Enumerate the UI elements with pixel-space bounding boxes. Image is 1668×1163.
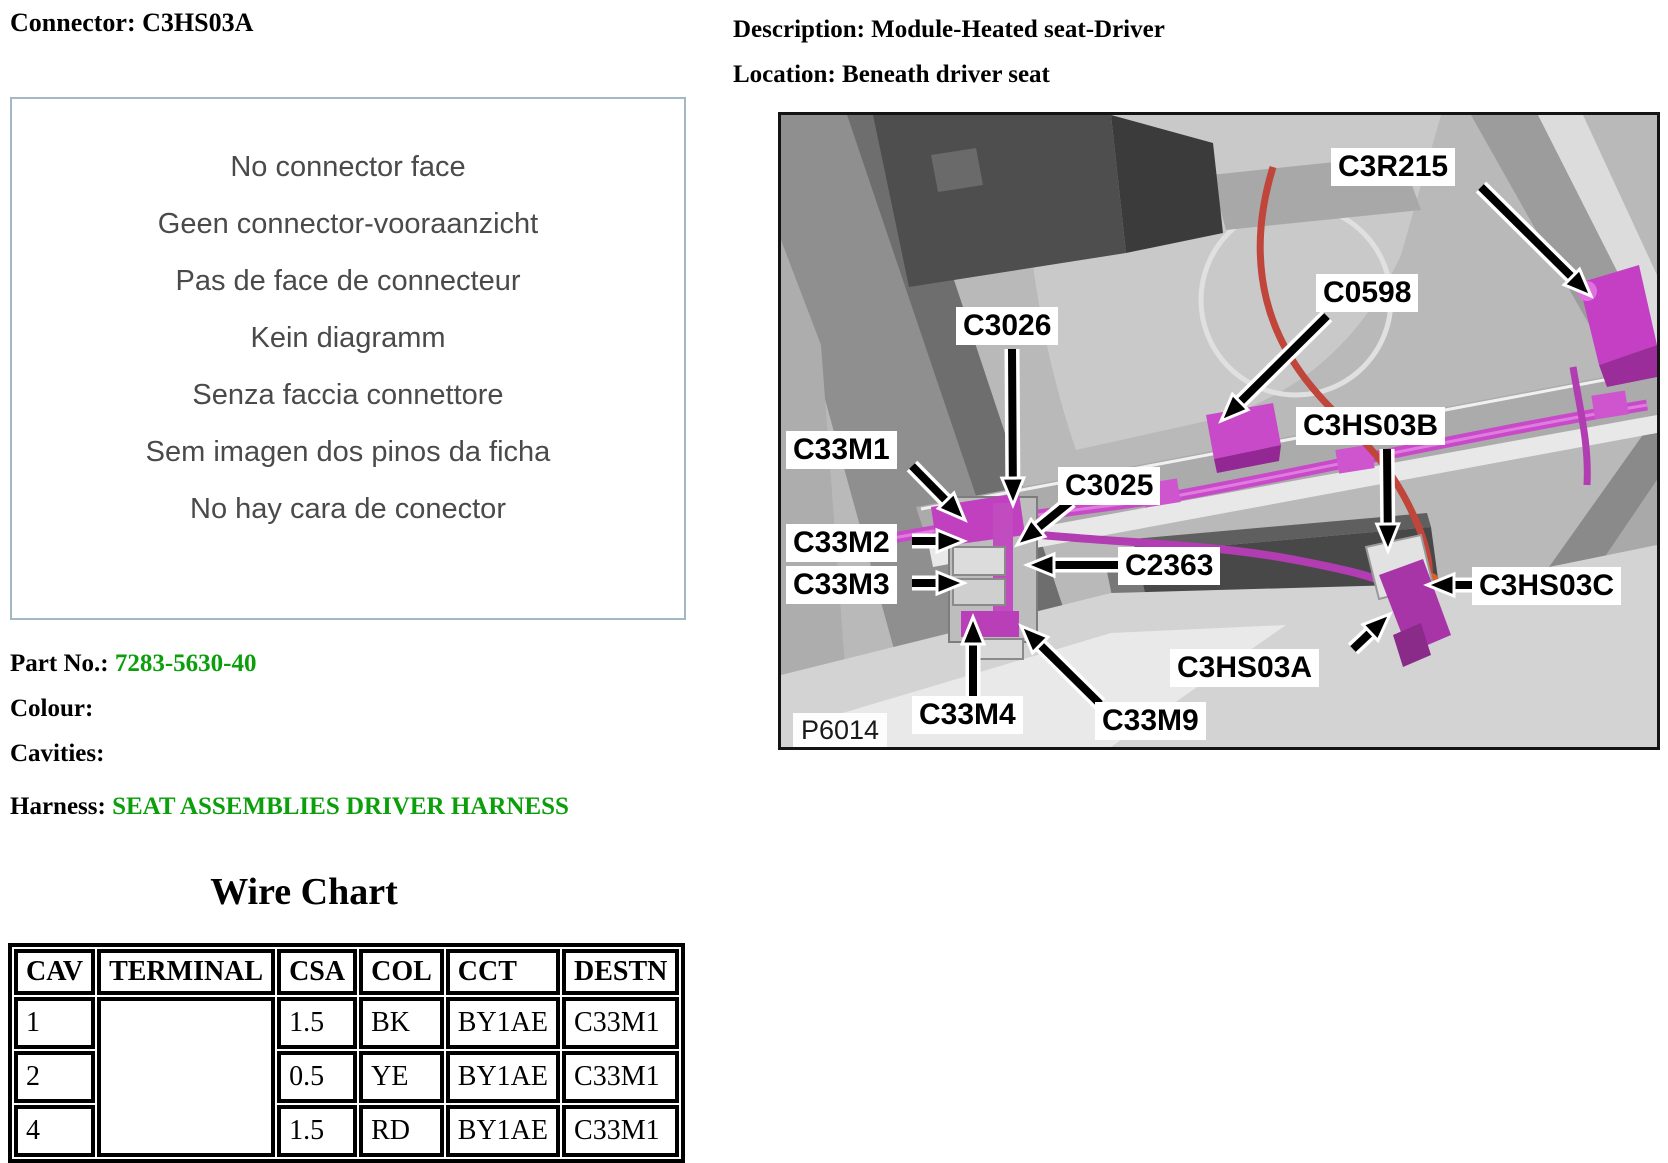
cell-destn: C33M1 [562,1051,679,1103]
location-label: Location: [733,61,836,88]
cell-col: BK [359,997,444,1049]
cell-csa: 0.5 [277,1051,357,1103]
cell-terminal-merged [97,997,275,1157]
col-header-terminal: TERMINAL [97,949,275,995]
callout-c3hs03c: C3HS03C [1472,567,1621,605]
cell-cct: BY1AE [446,997,560,1049]
col-header-csa: CSA [277,949,357,995]
description-row: Description: Module-Heated seat-Driver [733,16,1165,44]
callout-c3r215: C3R215 [1331,148,1455,186]
part-no-row: Part No.: 7283-5630-40 [10,650,256,678]
cavities-row: Cavities: [10,740,104,768]
cell-destn: C33M1 [562,1105,679,1157]
page: { "left": { "title": "Connector: C3HS03A… [0,0,1668,1147]
no-face-line: Geen connector-vooraanzicht [12,196,684,253]
cell-col: YE [359,1051,444,1103]
figure-code: P6014 [793,713,887,747]
no-face-line: Sem imagen dos pinos da ficha [12,424,684,481]
harness-link[interactable]: SEAT ASSEMBLIES DRIVER HARNESS [112,793,569,820]
no-face-line: Pas de face de connecteur [12,253,684,310]
col-header-cav: CAV [14,949,95,995]
callout-c0598: C0598 [1316,274,1418,312]
callout-c33m3: C33M3 [786,566,897,604]
col-header-col: COL [359,949,444,995]
colour-label: Colour: [10,695,93,722]
cavities-label: Cavities: [10,740,104,767]
cell-cct: BY1AE [446,1051,560,1103]
no-connector-face-text: No connector face Geen connector-vooraan… [12,139,684,538]
cell-col: RD [359,1105,444,1157]
callout-c3hs03a: C3HS03A [1170,649,1319,687]
col-header-cct: CCT [446,949,560,995]
connector-c0598-target [1206,403,1281,473]
callout-c3025: C3025 [1058,467,1160,505]
colour-row: Colour: [10,695,93,723]
connector-location-photo: P6014 C3026C3R215C0598C33M1C3025C33M2C23… [778,112,1660,750]
no-face-line: Senza faccia connettore [12,367,684,424]
callout-c2363: C2363 [1118,547,1220,585]
wire-chart-table: CAV TERMINAL CSA COL CCT DESTN 1 1.5 BK … [8,943,685,1163]
cell-cav: 1 [14,997,95,1049]
location-row: Location: Beneath driver seat [733,61,1050,89]
callout-c33m9: C33M9 [1095,702,1206,740]
description-value: Module-Heated seat-Driver [871,16,1165,43]
connector-title: Connector: C3HS03A [10,8,253,38]
callout-c3026: C3026 [956,307,1058,345]
cell-cav: 2 [14,1051,95,1103]
cell-cct: BY1AE [446,1105,560,1157]
harness-row: Harness: SEAT ASSEMBLIES DRIVER HARNESS [10,793,569,821]
callout-c33m1: C33M1 [786,431,897,469]
cell-csa: 1.5 [277,997,357,1049]
no-connector-face-box: No connector face Geen connector-vooraan… [10,97,686,620]
callout-c3hs03b: C3HS03B [1296,407,1445,445]
location-value: Beneath driver seat [842,61,1050,88]
no-face-line: No hay cara de conector [12,481,684,538]
table-row: 1 1.5 BK BY1AE C33M1 [14,997,679,1049]
harness-label: Harness: [10,793,106,820]
callout-c33m4: C33M4 [912,696,1023,734]
cell-cav: 4 [14,1105,95,1157]
wire-chart-header-row: CAV TERMINAL CSA COL CCT DESTN [14,949,679,995]
part-no-label: Part No.: [10,650,109,677]
wire-chart-title: Wire Chart [8,870,600,914]
part-no-link[interactable]: 7283-5630-40 [115,650,257,677]
no-face-line: Kein diagramm [12,310,684,367]
col-header-destn: DESTN [562,949,679,995]
description-label: Description: [733,16,865,43]
callout-c33m2: C33M2 [786,524,897,562]
cell-destn: C33M1 [562,997,679,1049]
cell-csa: 1.5 [277,1105,357,1157]
no-face-line: No connector face [12,139,684,196]
